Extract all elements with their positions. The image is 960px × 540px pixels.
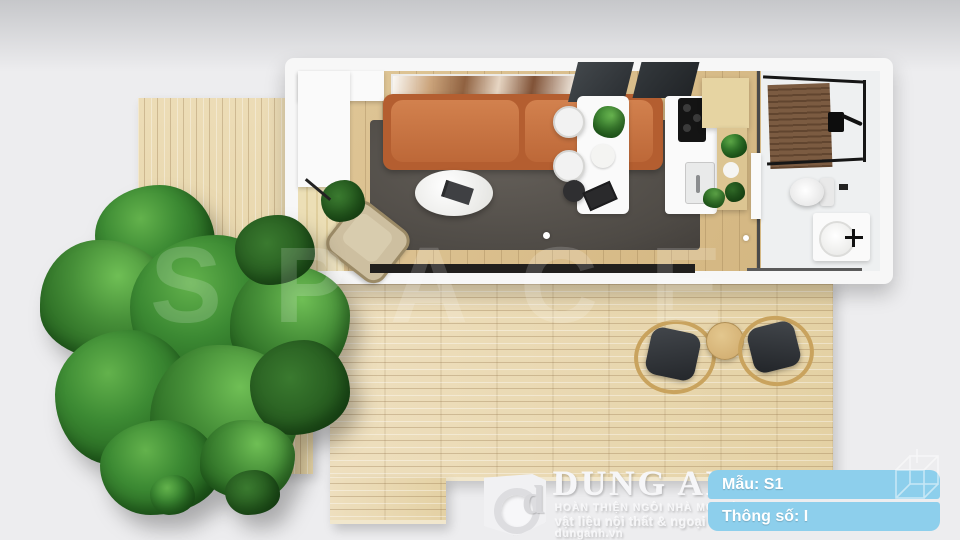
dark-stool [563, 180, 585, 202]
shelf-bowl [723, 162, 739, 178]
bath-window-strip [747, 268, 862, 271]
dining-chair-top [553, 106, 585, 138]
downlight [743, 235, 749, 241]
container-house [285, 58, 893, 284]
shower-floor [768, 83, 833, 169]
cube-logo-watermark [884, 446, 946, 512]
shelf-plant-top [721, 134, 747, 158]
side-cabinet [298, 71, 350, 187]
logo-monogram: d [522, 480, 544, 520]
dining-chair-middle [553, 150, 585, 182]
toilet-bowl [790, 178, 824, 206]
tree [28, 178, 358, 516]
book [441, 180, 474, 205]
sliding-window-strip [370, 264, 695, 273]
bathroom-door [751, 153, 761, 219]
shelf-plant-bottom [725, 182, 745, 202]
render-canvas: SPACE d DUNG ANH HOÀN THIỆN NGÔI NHÀ MƠ … [0, 0, 960, 540]
model-badge-label: Mẫu: S1 [722, 476, 783, 494]
chair-cushion-left [644, 325, 703, 382]
burner [683, 104, 691, 112]
tree-foliage [235, 215, 315, 285]
table-plate [591, 144, 615, 168]
flush-button [839, 184, 848, 190]
brand-logo: d [484, 474, 546, 536]
skylight-window-right [633, 62, 700, 98]
cross-faucet-v [852, 229, 855, 247]
tree-foliage [250, 340, 350, 435]
brand-website: dunganh.vn [555, 528, 623, 540]
shower-glass-side [863, 80, 866, 162]
tree-foliage [150, 475, 195, 515]
burner [693, 114, 701, 122]
tree-foliage [225, 470, 280, 515]
counter-plant [703, 188, 725, 208]
faucet [696, 175, 700, 193]
vessel-sink [819, 221, 855, 257]
downlight [543, 232, 550, 239]
sofa-cushion-left [391, 100, 519, 162]
coffee-table [415, 170, 493, 216]
spec-badge-label: Thông số: I [722, 508, 808, 526]
table-plant [593, 106, 625, 138]
upper-wood-cabinet [702, 78, 749, 128]
burner [683, 124, 691, 132]
